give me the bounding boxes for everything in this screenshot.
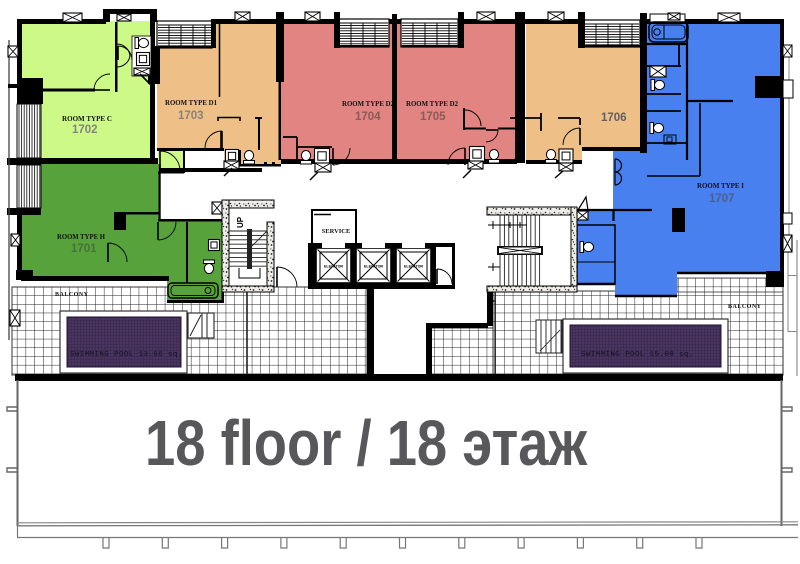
svg-text:ROOM TYPE D2: ROOM TYPE D2: [406, 101, 459, 108]
svg-text:ROOM TYPE I: ROOM TYPE I: [697, 183, 744, 190]
svg-text:ELEVATOR: ELEVATOR: [364, 265, 383, 269]
svg-text:ROOM TYPE C: ROOM TYPE C: [62, 116, 112, 123]
svg-text:1706: 1706: [601, 112, 627, 124]
svg-text:1705: 1705: [420, 111, 446, 123]
svg-text:BALCONY: BALCONY: [728, 304, 762, 310]
svg-text:18 floor / 18 этаж: 18 floor / 18 этаж: [145, 407, 588, 479]
svg-text:1701: 1701: [71, 243, 97, 255]
svg-text:ELEVATOR: ELEVATOR: [404, 265, 423, 269]
svg-text:1703: 1703: [178, 110, 204, 122]
svg-text:SERVICE: SERVICE: [322, 228, 351, 235]
svg-text:1707: 1707: [709, 193, 735, 205]
svg-text:ROOM TYPE D1: ROOM TYPE D1: [165, 100, 218, 107]
svg-text:ROOM TYPE D2: ROOM TYPE D2: [342, 101, 395, 108]
svg-text:SWIMMING POOL 13.66 sq.: SWIMMING POOL 13.66 sq.: [70, 351, 183, 359]
svg-text:UP: UP: [236, 216, 245, 228]
svg-text:1702: 1702: [72, 124, 98, 136]
svg-text:ROOM TYPE H: ROOM TYPE H: [57, 234, 106, 241]
svg-text:BALCONY: BALCONY: [55, 292, 89, 298]
svg-text:ELEVATOR: ELEVATOR: [324, 265, 343, 269]
svg-text:SWIMMING POOL 15.08 sq.: SWIMMING POOL 15.08 sq.: [581, 351, 694, 359]
svg-text:1704: 1704: [355, 111, 381, 123]
